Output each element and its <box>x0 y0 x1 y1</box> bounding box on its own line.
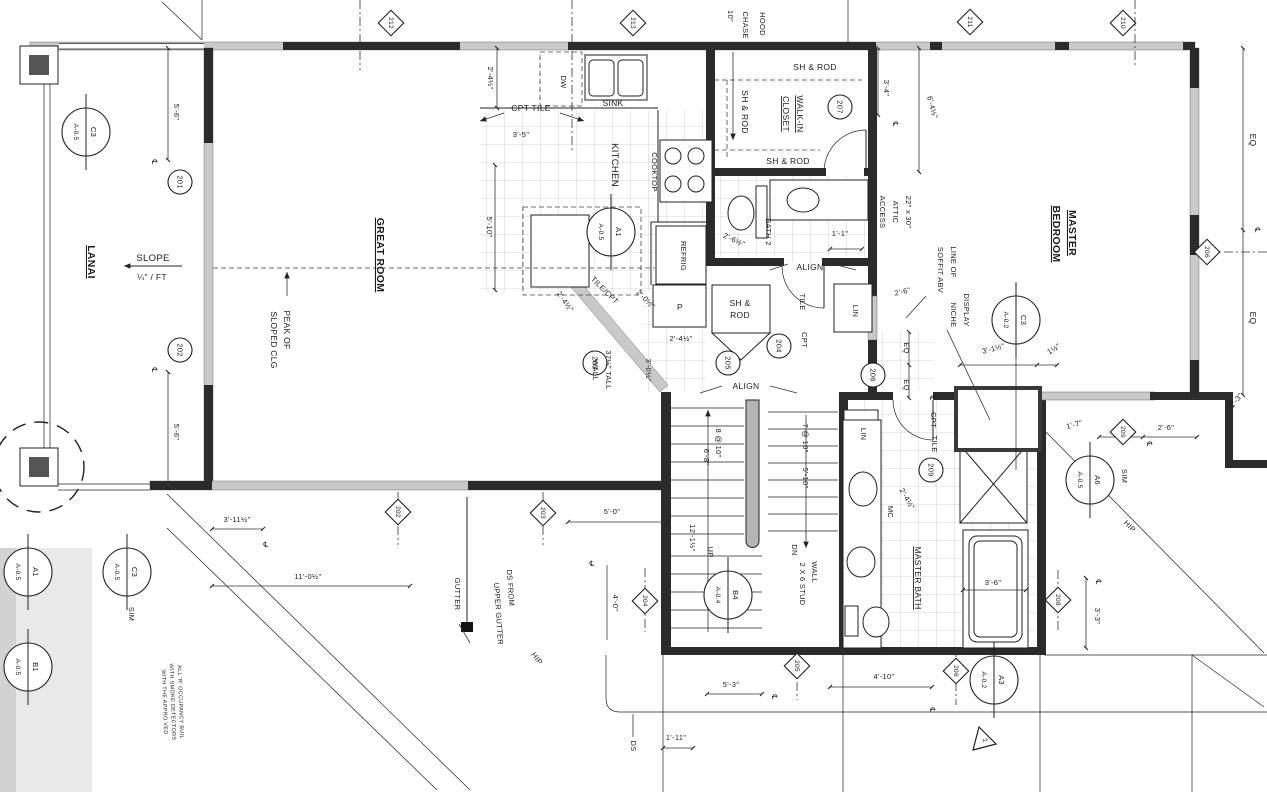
callout-sheet: A-0.5 <box>597 223 604 240</box>
dim-2-4h-pantry: 2'-4½" <box>670 334 693 343</box>
cl-mark: ℄ <box>589 559 594 568</box>
callout-code: A1 <box>31 567 40 577</box>
cl-mark: ℄ <box>150 367 159 372</box>
label-align-2: ALIGN <box>796 262 823 272</box>
window-tag: 208 <box>1054 594 1061 606</box>
dim-1h: 1½" <box>1045 341 1062 356</box>
label-up: UP <box>706 546 715 557</box>
callout-code: A1 <box>614 227 623 237</box>
room-label-master-bath: MASTER BATH <box>913 546 923 609</box>
label-sh-rod-closet-1: SH & <box>729 298 750 308</box>
dim-11-0h: 11'-0½" <box>295 572 322 581</box>
label-sink: SINK <box>602 98 623 108</box>
label-sh-rod-closet-2: ROD <box>730 310 750 320</box>
label-hip-right: HIP <box>1122 518 1138 534</box>
dim-1-11: 1'-11" <box>666 733 686 742</box>
label-hip-left: HIP <box>529 650 544 666</box>
callout-sheet: A-0.4 <box>714 586 721 603</box>
dim-2-4h-diag: 2'-4½" <box>555 290 576 314</box>
dim-4-10: 4'-10" <box>874 672 895 681</box>
room-label-linen2: LIN <box>859 428 868 441</box>
label-gutter: GUTTER <box>453 578 462 611</box>
cl-mark: ℄ <box>263 540 268 549</box>
dim-3-0h: 3'-0½" <box>644 359 653 382</box>
dim-2-4h-kitchen: 2'-4½" <box>486 67 495 90</box>
label-hood: HOOD <box>758 12 767 36</box>
label-sh-rod-top: SH & ROD <box>793 62 837 72</box>
label-peak-2: SLOPED CLG <box>269 311 279 368</box>
label-tall-wall-1: 37½" TALL <box>604 350 613 389</box>
callout-sheet: A-0.5 <box>113 563 120 580</box>
general-note: ALL 'R' OCCUPANCY BUIL WITH SMOKE DETECT… <box>160 663 184 740</box>
label-risers-8: 8 @ 10" <box>714 428 723 457</box>
dim-1-1: 1'-1" <box>832 229 848 238</box>
room-label-master: MASTER <box>1066 210 1078 256</box>
window-tag: 203 <box>539 507 546 519</box>
window-tag: 202 <box>394 506 401 518</box>
note-line-3: WITH THE APPRO VED <box>160 669 168 734</box>
cl-mark: ℄ <box>891 121 900 126</box>
callout-sheet: A-0.5 <box>14 658 21 675</box>
label-ds-upper-2: UPPER GUTTER <box>492 582 505 645</box>
label-ds: DS <box>629 740 638 751</box>
window-tag: 206 <box>1203 246 1210 258</box>
dim-5-3: 5'-3" <box>723 680 739 689</box>
label-tile: TILE <box>798 293 807 310</box>
window-tag: 204 <box>641 595 648 607</box>
label-slope: SLOPE <box>136 253 169 264</box>
callout-sheet: A-0.2 <box>980 671 987 688</box>
callout-code: C3 <box>130 567 139 577</box>
window-tag: 210 <box>1119 17 1126 29</box>
dim-4-0: 4'-0" <box>611 595 620 611</box>
callout-code: C3 <box>1019 315 1028 325</box>
room-label-bedroom: BEDROOM <box>1050 206 1062 263</box>
dim-3-1h: 3'-1½" <box>981 341 1006 355</box>
cl-mark: ℄ <box>1094 579 1103 584</box>
dim-5-10-kitchen: 5'-10" <box>485 217 494 238</box>
window-tag: 213 <box>629 17 636 29</box>
cl-mark: ℄ <box>150 159 159 164</box>
dim-5-0: 5'-0" <box>604 507 620 516</box>
label-sh-rod-bottom: SH & ROD <box>766 156 810 166</box>
label-attic-2: ATTIC <box>891 201 900 224</box>
label-cpt: CPT <box>800 332 809 348</box>
callout-sheet: A-0.2 <box>1002 311 1009 328</box>
dim-3-3: 3'-3" <box>1093 608 1102 624</box>
label-refrig: REFRIG <box>679 241 688 271</box>
label-chase: CHASE <box>741 11 750 38</box>
callout-code: A6 <box>1093 475 1102 485</box>
window-tag: 212 <box>387 17 394 29</box>
door-tag: 204 <box>775 339 784 352</box>
label-align-1: ALIGN <box>732 381 759 391</box>
cl-mark: ℄ <box>928 707 937 712</box>
door-tag: 209 <box>927 463 936 476</box>
note-line-1: ALL 'R' OCCUPANCY BUIL <box>176 665 185 739</box>
dim-2-6-right: 2'-6" <box>1158 423 1174 432</box>
label-eq-right-1: EQ <box>1248 134 1258 147</box>
room-label-great-room: GREAT ROOM <box>374 218 386 293</box>
callout-code: C3 <box>89 127 98 137</box>
label-slope-rate: ¼" / FT <box>137 272 167 282</box>
dim-3-6-tub: 3'-6" <box>985 578 1001 587</box>
hall-closet <box>712 285 770 333</box>
window-tag: 205 <box>793 660 800 672</box>
label-hood-depth: 10" <box>726 10 735 22</box>
label-sim-c3: SIM <box>127 607 136 621</box>
dim-3-5: 3'-5" <box>513 130 529 139</box>
label-rise-5-10: 5'-10" <box>801 468 810 489</box>
door-tag: 207 <box>836 100 845 113</box>
door-tag: 205 <box>724 356 733 369</box>
callout-code: B1 <box>31 662 40 672</box>
label-ds-upper-1: DS FROM <box>505 569 517 606</box>
label-dw: DW <box>559 75 568 89</box>
callout-sheet: A-0.5 <box>1076 471 1083 488</box>
door-tag: 202 <box>176 343 185 356</box>
label-eq-right-2: EQ <box>1248 312 1258 325</box>
cl-mark: ℄ <box>1145 441 1154 446</box>
dim-5-6-top: 5'-6" <box>172 104 181 120</box>
label-stud-wall-1: 2 X 6 STUD <box>798 562 807 605</box>
label-dn: DN <box>790 544 799 555</box>
door-tag: 201 <box>176 175 185 188</box>
callout-sheet: A-0.5 <box>14 563 21 580</box>
label-sh-rod-left: SH & ROD <box>740 90 750 134</box>
dim-3-4: 3'-4" <box>882 80 891 96</box>
stair-rail <box>746 400 759 548</box>
door-tag: 206 <box>869 368 878 381</box>
label-cpt-tile: CPT TILE <box>511 103 550 113</box>
label-cl-cpt-tile: ℄ <box>928 395 937 400</box>
label-peak-1: PEAK OF <box>282 311 292 350</box>
label-attic-1: 22" x 30" <box>904 196 913 229</box>
dim-6-4h: 6'-4½" <box>925 95 940 120</box>
bath2-fixtures <box>712 180 872 360</box>
callout-sheet: A-0.5 <box>72 123 79 140</box>
room-label-lanai: LANAI <box>85 245 97 279</box>
cl-mark: ℄ <box>770 694 779 699</box>
callout-code: A3 <box>997 675 1006 685</box>
label-cpt-2: CPT <box>929 412 938 428</box>
label-medicine-cabinet: MC <box>886 506 895 519</box>
room-label-closet: CLOSET <box>781 96 791 132</box>
label-sim-a6: SIM <box>1120 469 1129 483</box>
label-rise-6-8: 6'-8" <box>702 449 711 465</box>
label-display-2: NICHE <box>949 303 958 328</box>
floor-plan-page: 212 213 211 210 206 202 203 204 205 206 … <box>0 0 1267 792</box>
dim-3-11h: 3'-11½" <box>224 515 251 524</box>
soffit-leader <box>906 296 926 318</box>
label-cl-right: ℄ <box>1253 227 1262 232</box>
room-label-kitchen: KITCHEN <box>609 143 620 187</box>
label-display-1: DISPLAY <box>962 293 971 326</box>
callout-code: B4 <box>731 590 740 600</box>
window-tag: 211 <box>966 16 973 27</box>
note-line-2: WITH SMOKE DETECTORS <box>168 663 177 740</box>
dim-5-6-bottom: 5'-6" <box>172 424 181 440</box>
label-tall-wall-2: WALL <box>591 359 600 380</box>
floor-plan-drawing: 212 213 211 210 206 202 203 204 205 206 … <box>0 0 1267 792</box>
label-risers-7: 7 @ 10" <box>801 423 810 452</box>
label-soffit-1: LINE OF <box>949 246 958 277</box>
label-stud-wall-2: WALL <box>810 561 819 582</box>
room-label-bath2: BATH 2 <box>764 218 773 246</box>
dim-2-6-soffit: 2'-6" <box>894 285 912 297</box>
label-cooktop: COOKTOP <box>650 152 659 191</box>
label-eq-hall-2: EQ <box>902 379 911 390</box>
window-tag: 206 <box>952 665 959 677</box>
label-attic-3: ACCESS <box>878 196 887 229</box>
revision-triangle: 2 <box>973 727 996 750</box>
window-tag: 209 <box>1119 426 1126 438</box>
label-tile-2: TILE <box>930 435 939 452</box>
label-eq-hall-1: EQ <box>902 342 911 353</box>
room-label-walk-in: WALK-IN <box>795 95 805 132</box>
display-niche-box <box>956 388 1040 450</box>
room-label-pantry: P <box>677 302 683 312</box>
dim-1-7: 1'-7" <box>1065 418 1083 431</box>
room-label-linen1: LIN <box>851 305 860 318</box>
label-soffit-2: SOFFIT ABV <box>936 247 945 293</box>
dim-12-1h: 12'-1½" <box>688 524 697 551</box>
